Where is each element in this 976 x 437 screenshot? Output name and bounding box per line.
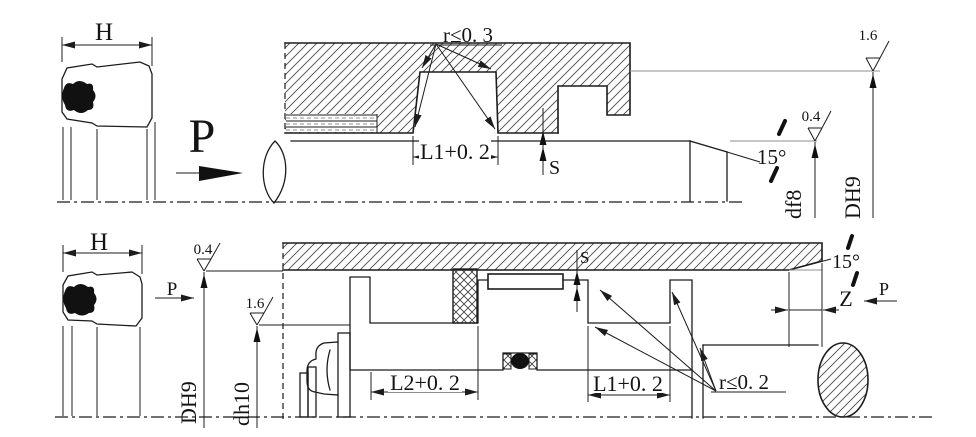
groove-radius-note: r≤0. 3 [443,23,493,47]
chamfer-callout-top: 15° [727,121,786,181]
pressure-label: P [879,279,889,299]
chamfer-angle-label: 15° [757,145,786,169]
top-rod [263,141,727,203]
clearance-label: S [549,157,560,179]
guide-ring [488,274,563,289]
bore-finish-and-diameter: 1.6 DH9 [630,28,889,219]
top-section-view: H P [57,19,889,219]
cylinder-hatch [283,243,822,270]
pressure-label: P [189,110,216,163]
surface-finish-symbol-16 [866,41,889,71]
groove-radius-note: r≤0. 2 [719,370,769,394]
top-housing-block [285,43,630,133]
pressure-arrow-bottom-left: P [155,279,194,300]
o-ring-with-backups [503,353,537,369]
top-seal-profile: H [62,19,155,200]
groove-length-dimension-top: L1+0. 2 [413,136,498,165]
groove-radius-callout-top: r≤0. 3 [415,23,502,129]
seal-width-dimension: H [63,229,142,274]
chamfer-length-label: Z [839,286,852,311]
groove2-length-label: L2+0. 2 [390,370,460,395]
drawing-canvas: H P [0,0,976,437]
seal-installation-drawing: H P [0,0,976,437]
bottom-section-view: H P 0.4 DH9 [55,229,935,428]
groove-length-label: L1+0. 2 [420,139,490,164]
pressure-arrow-top: P [176,110,243,181]
seal-width-dimension: H [62,19,152,66]
groove-diameter-code: dh10 [229,382,254,426]
rod-surface-finish: 0.4 [802,109,821,125]
groove1-length-label: L1+0. 2 [593,371,663,396]
piston-retainer-parts [300,333,350,417]
groove1-length-dimension: L1+0. 2 [588,326,670,402]
groove-surface-finish: 1.6 [246,296,265,312]
bore-surface-finish: 0.4 [194,242,213,258]
compact-seal-element [453,269,477,323]
bottom-seal-profile: H [63,229,142,416]
pressure-label: P [167,279,178,300]
seal-shaft-edges [63,122,155,200]
groove2-length-dimension: L2+0. 2 [371,326,478,400]
rod-diameter-code: df8 [781,190,806,219]
x-ring-energizer [63,284,96,316]
bore-diameter-code: DH9 [840,176,865,219]
clearance-label: S [580,248,589,267]
pressure-arrowhead [199,166,243,181]
seal-width-label: H [90,229,108,256]
seal-width-label: H [95,19,113,46]
rod-rounded-end [818,343,868,417]
chamfer-angle-label: 15° [832,251,860,273]
x-ring-energizer [62,81,95,113]
pressure-arrow-bottom-right: P [864,279,897,301]
seal-shaft-edges [63,326,140,416]
o-ring [511,353,529,369]
thread-strips [286,114,377,133]
groove-finish-and-diameter-bottom: 1.6 dh10 [229,296,350,428]
piston-assembly [300,269,868,418]
bore-surface-finish: 1.6 [859,28,878,44]
rod-rounded-end [263,141,286,203]
